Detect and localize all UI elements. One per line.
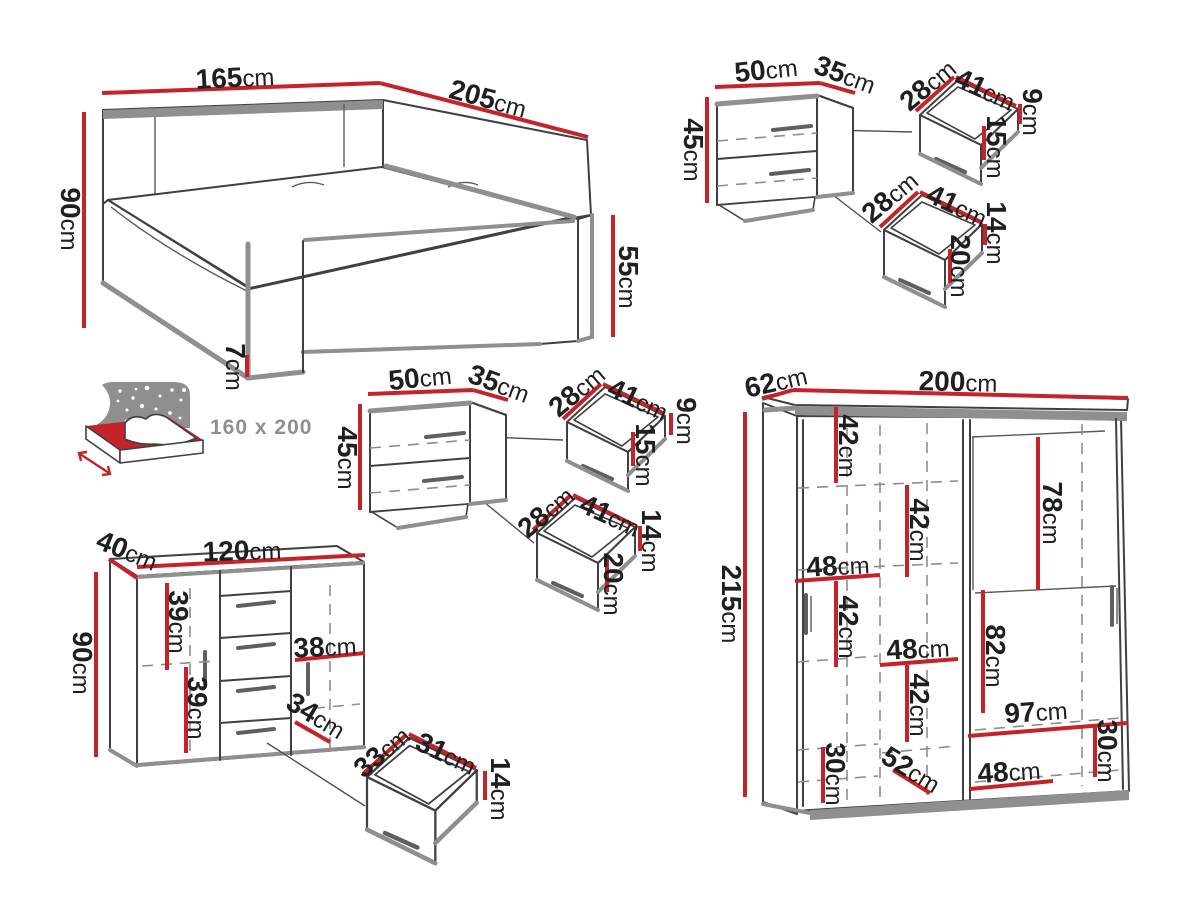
dresser-width-label: 120cm — [202, 534, 282, 568]
nightstand2-width-label: 50cm — [387, 359, 453, 396]
wardrobe-left-top-section-label: 42cm — [833, 414, 864, 477]
wardrobe-bottom-right-height-label: 30cm — [1092, 719, 1123, 782]
drawer2-back-height-label: 14cm — [981, 201, 1012, 264]
nightstand-width-label: 50cm — [733, 51, 799, 88]
wardrobe-hanging-top-label: 78cm — [1037, 481, 1068, 544]
nightstand2-height-label: 45cm — [332, 426, 363, 489]
mattress-size-note: 160 x 200 — [210, 416, 312, 439]
nightstand-top-diagram: 50cm 35cm 45cm 28cm 41cm 9cm 15cm 28cm 4… — [678, 49, 1048, 307]
wardrobe-diagram: 62cm 200cm 215cm 42cm 42cm 78cm 48cm 42c… — [716, 359, 1129, 820]
wardrobe-height-label: 215cm — [716, 565, 747, 644]
drawer3-back-height-label: 9cm — [671, 397, 702, 445]
nightstand-middle-diagram: 50cm 35cm 45cm 28cm 41cm 9cm 15cm 28cm 4… — [332, 358, 702, 615]
wardrobe-bottom-left-height-label: 30cm — [820, 742, 851, 805]
bed-height-label: 90cm — [55, 187, 86, 250]
drawer1-front-height-label: 15cm — [981, 115, 1012, 178]
wardrobe-mid-top-section-label: 42cm — [904, 498, 935, 561]
dresser-left-side — [110, 559, 137, 766]
dresser-upper-section-label: 39cm — [163, 590, 194, 653]
dresser-lower-section-label: 39cm — [182, 676, 213, 739]
dresser-height-label: 90cm — [67, 631, 98, 694]
wardrobe-width-label: 200cm — [918, 365, 997, 397]
dresser-shelf-width-label: 38cm — [293, 629, 358, 663]
drawer4-front-height-label: 20cm — [598, 552, 629, 615]
drawer3-front-height-label: 15cm — [630, 423, 661, 486]
drawer4-back-height-label: 14cm — [636, 509, 667, 572]
wardrobe-left-width-label: 48cm — [806, 548, 871, 582]
dresser-diagram: 40cm 120cm 90cm 39cm 39cm 38cm 34cm 33cm… — [67, 524, 516, 863]
bed-leg-height-label: 7cm — [220, 343, 251, 391]
dresser-drawer-height-label: 14cm — [485, 757, 516, 820]
icon-moon-swoosh — [62, 379, 110, 427]
wardrobe-bottom-inner-width-label: 48cm — [976, 754, 1041, 789]
wardrobe-mid-width-label: 48cm — [886, 631, 951, 665]
icon-width-arrow — [79, 452, 110, 475]
nightstand2-depth-label: 35cm — [464, 358, 534, 409]
nightstand-depth-label: 35cm — [810, 49, 880, 100]
bed-foot-height-label: 55cm — [613, 245, 644, 308]
bed-size-icon: 160 x 200 — [62, 379, 312, 475]
bed-width-label: 165cm — [195, 60, 275, 95]
wardrobe-hanging-bottom-label: 82cm — [980, 624, 1011, 687]
bed-diagram: 165cm 205cm 90cm 55cm 7cm — [55, 60, 644, 391]
drawer1-back-height-label: 9cm — [1017, 88, 1048, 136]
bed-right-leg — [578, 215, 592, 341]
drawer2-front-height-label: 20cm — [945, 234, 976, 297]
wardrobe-bottom-width-label: 97cm — [1003, 694, 1068, 729]
furniture-dimensions-diagram: 165cm 205cm 90cm 55cm 7cm 160 x 200 — [0, 0, 1200, 899]
nightstand-height-label: 45cm — [678, 118, 709, 181]
wardrobe-mid-low-section-label: 42cm — [904, 673, 935, 736]
wardrobe-left-side — [763, 403, 797, 814]
wardrobe-left-mid-section-label: 42cm — [833, 595, 864, 658]
